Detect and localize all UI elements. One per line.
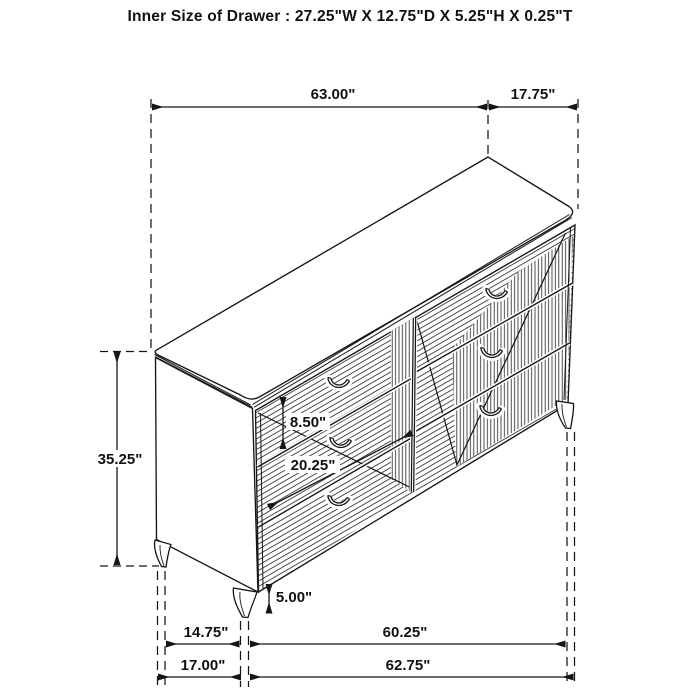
dresser-diagram-canvas: 63.00" 17.75" 35.25" 8.50" 20.25" 5.00" … bbox=[0, 0, 700, 700]
label-drawer-width: 20.25" bbox=[291, 457, 336, 474]
label-top-width: 63.00" bbox=[311, 86, 356, 103]
label-base-width: 62.75" bbox=[386, 657, 431, 674]
dresser-leg bbox=[556, 401, 573, 429]
label-drawer-height: 8.50" bbox=[290, 414, 326, 431]
label-leg-span-depth: 14.75" bbox=[184, 624, 229, 641]
label-top-depth: 17.75" bbox=[511, 86, 556, 103]
label-leg-span-width: 60.25" bbox=[383, 624, 428, 641]
dresser-leg bbox=[233, 588, 257, 618]
label-leg-height: 5.00" bbox=[276, 589, 312, 606]
furniture-dimension-diagram: Inner Size of Drawer : 27.25"W X 12.75"D… bbox=[0, 0, 700, 700]
center-divider bbox=[413, 318, 415, 492]
dresser-drawing bbox=[155, 157, 576, 618]
label-base-depth: 17.00" bbox=[181, 657, 226, 674]
label-height: 35.25" bbox=[98, 451, 143, 468]
